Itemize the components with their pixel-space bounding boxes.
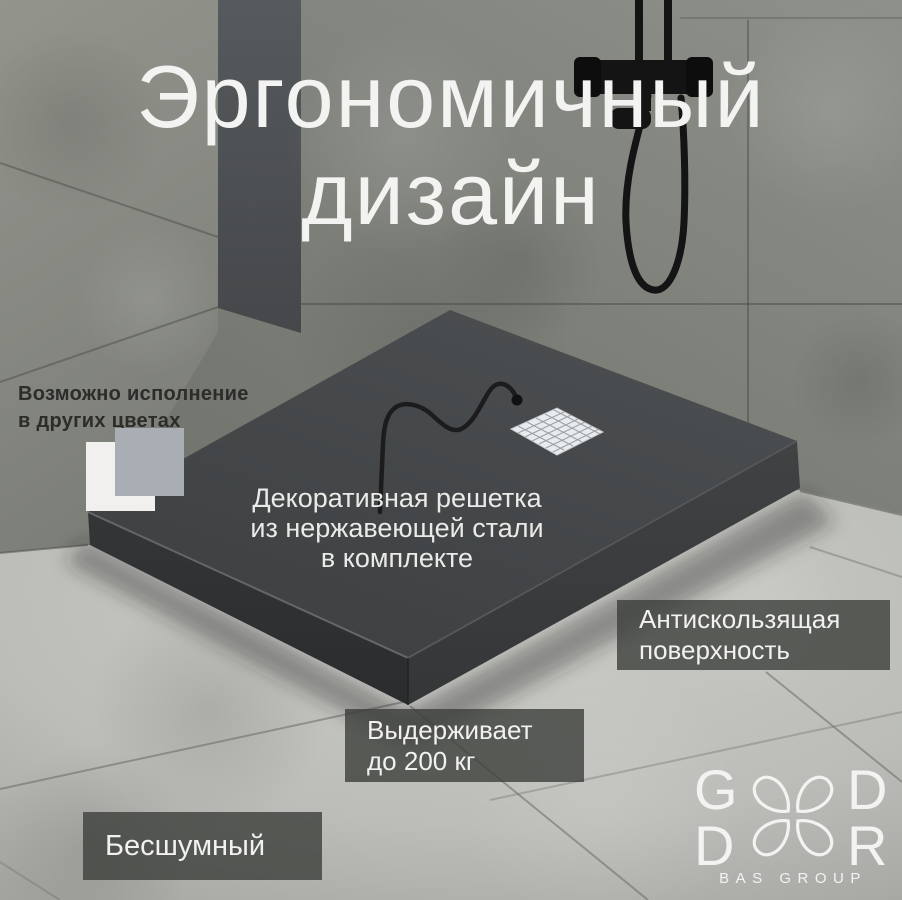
color-note-line-1: Возможно исполнение bbox=[18, 381, 249, 408]
badge-antislip: Антискользящая поверхность bbox=[617, 600, 890, 670]
badge-weight-capacity: Выдерживает до 200 кг bbox=[345, 709, 584, 782]
badge-antislip-line-1: Антискользящая bbox=[639, 604, 890, 635]
badge-weight-line-2: до 200 кг bbox=[367, 746, 584, 777]
brand-logo: G D D R BAS GROUP bbox=[694, 752, 892, 886]
logo-letter-d2: D bbox=[694, 814, 734, 877]
badge-weight-line-1: Выдерживает bbox=[367, 715, 584, 746]
badge-silent-label: Бесшумный bbox=[105, 830, 322, 862]
title-line-1: Эргономичный bbox=[0, 48, 902, 145]
badge-antislip-line-2: поверхность bbox=[639, 635, 890, 666]
clover-icon bbox=[748, 771, 837, 860]
logo-subtitle: BAS GROUP bbox=[719, 870, 867, 886]
grille-note-line-1: Декоративная решетка bbox=[216, 483, 578, 513]
product-poster: Эргономичный дизайн Возможно исполнение … bbox=[0, 0, 902, 900]
grille-note-line-2: из нержавеющей стали bbox=[216, 513, 578, 543]
logo-letter-g: G bbox=[694, 758, 738, 821]
logo-letter-r: R bbox=[847, 814, 887, 877]
logo-letter-d1: D bbox=[847, 758, 887, 821]
title-line-2: дизайн bbox=[0, 145, 902, 242]
color-swatch-gray bbox=[115, 428, 184, 496]
grille-note-line-3: в комплекте bbox=[216, 543, 578, 573]
color-options-note: Возможно исполнение в других цветах bbox=[18, 381, 249, 435]
page-title: Эргономичный дизайн bbox=[0, 48, 902, 242]
badge-silent: Бесшумный bbox=[83, 812, 322, 880]
grille-note: Декоративная решетка из нержавеющей стал… bbox=[216, 483, 578, 573]
